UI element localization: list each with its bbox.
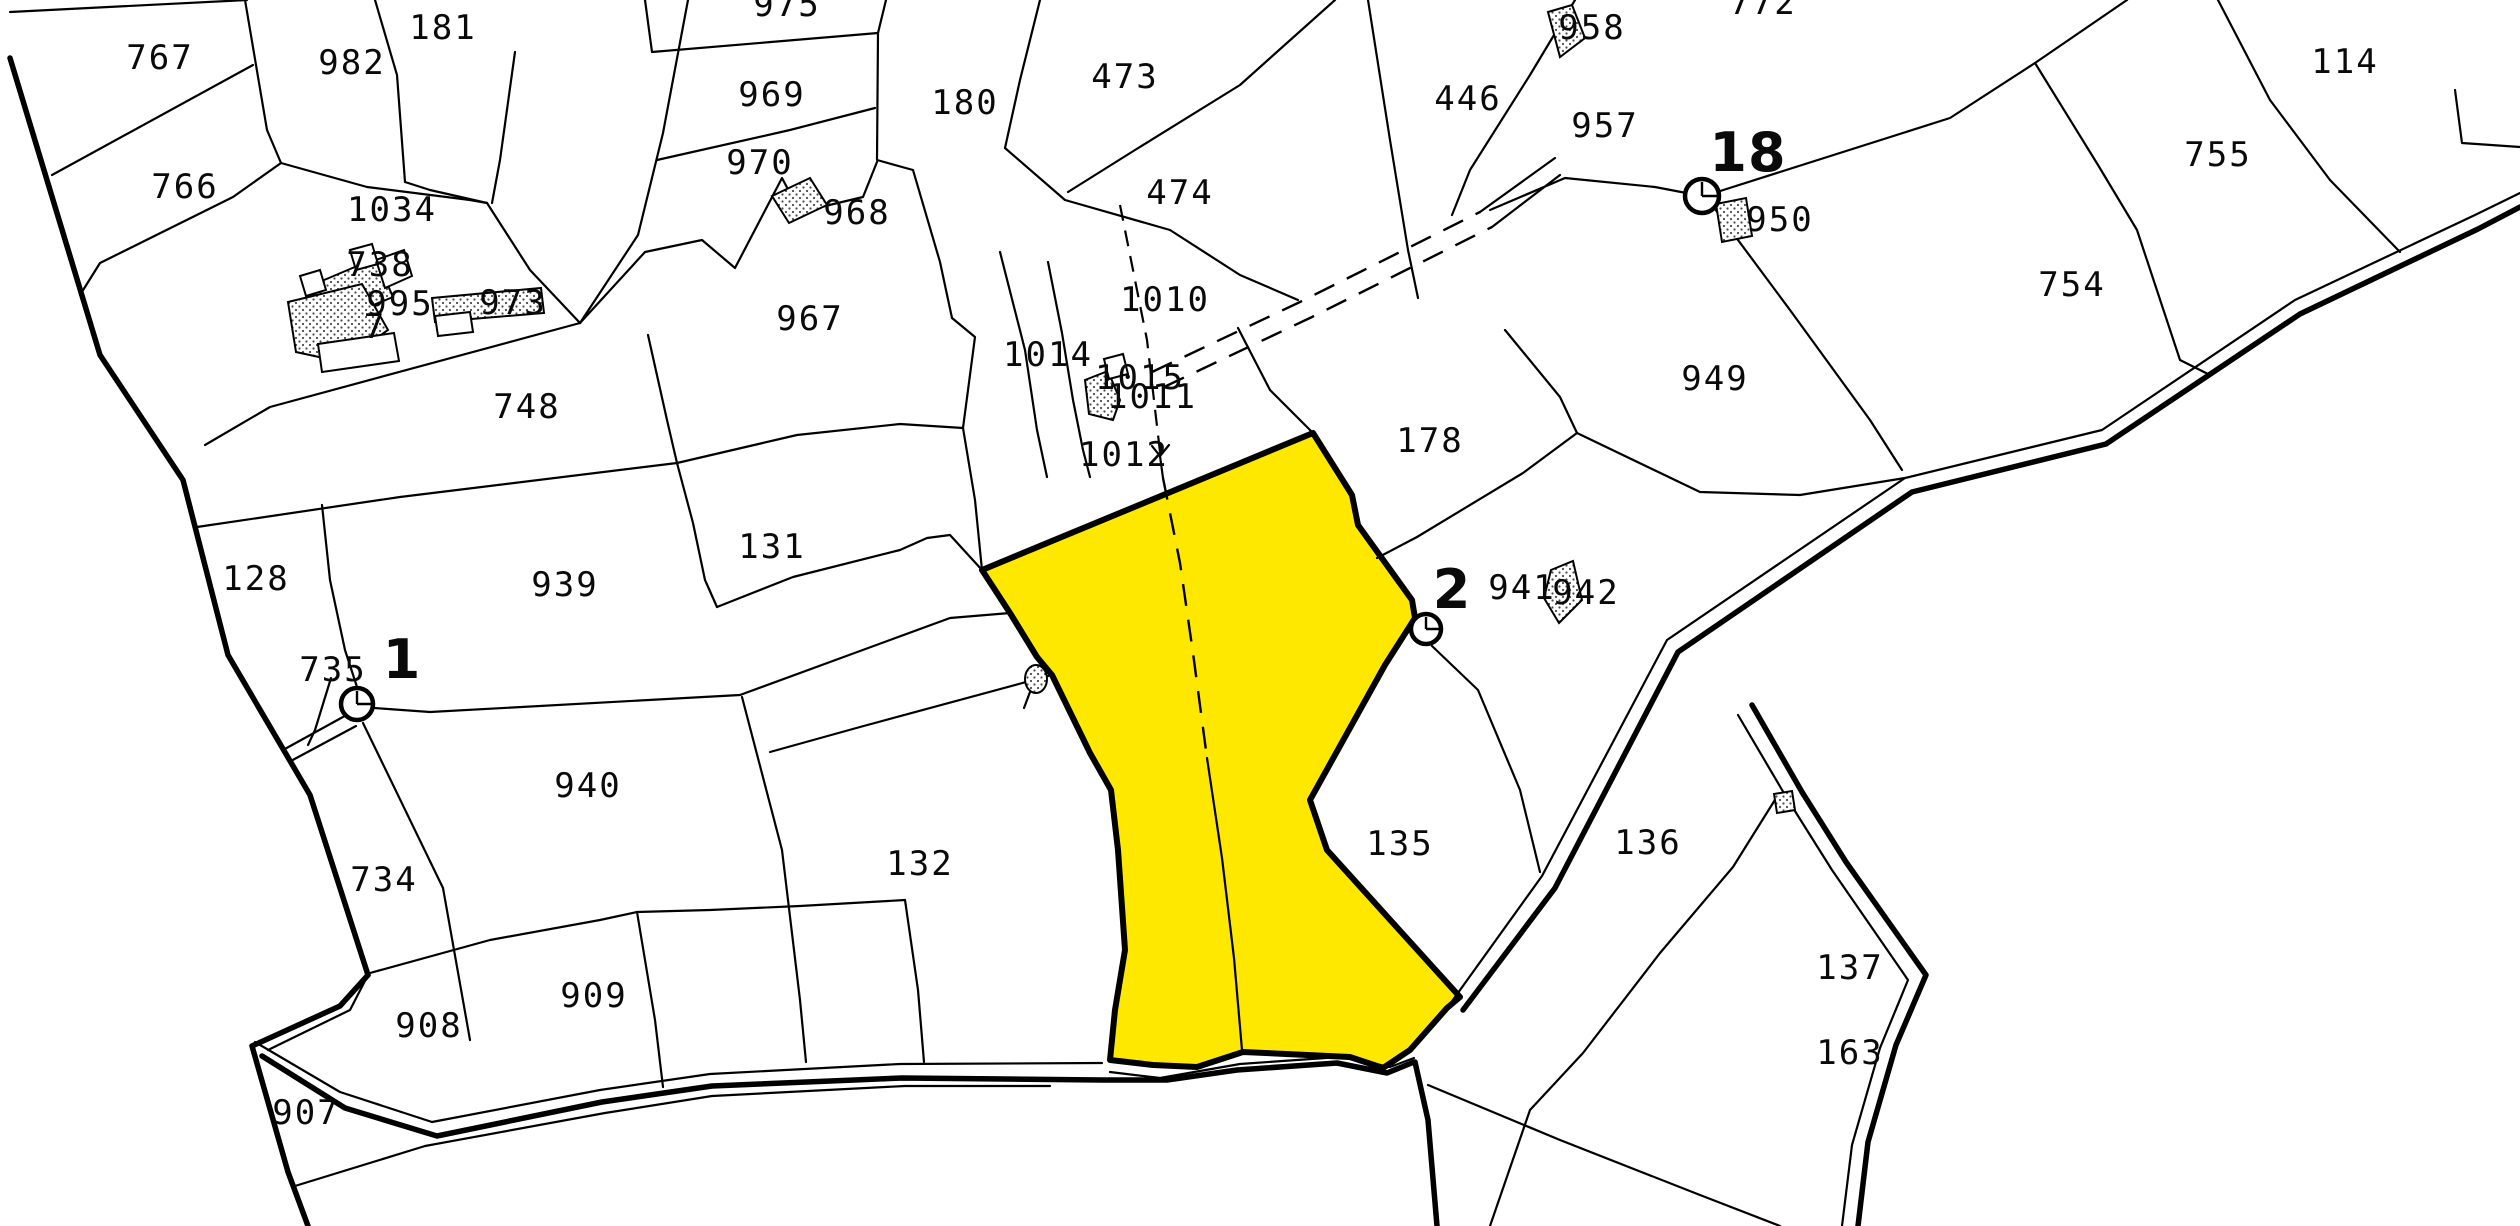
parcel-label-735: 735	[299, 650, 366, 690]
parcel-label-970: 970	[726, 143, 793, 183]
parcel-label-180: 180	[931, 83, 998, 123]
survey-point-label-18: 18	[1709, 121, 1786, 184]
parcel-label-135: 135	[1366, 824, 1433, 864]
parcel-label-975: 975	[753, 0, 820, 25]
parcel-label-163: 163	[1816, 1033, 1883, 1073]
parcel-label-754: 754	[2038, 265, 2105, 305]
parcel-label-949: 949	[1681, 359, 1748, 399]
parcel-label-908: 908	[395, 1006, 462, 1046]
parcel-label-982: 982	[318, 43, 385, 83]
parcel-label-767: 767	[126, 38, 193, 78]
parcel-label-942: 942	[1552, 573, 1619, 613]
parcel-label-939: 939	[531, 565, 598, 605]
parcel-label-957: 957	[1571, 106, 1638, 146]
parcel-label-940: 940	[554, 766, 621, 806]
parcel-label-132: 132	[886, 844, 953, 884]
parcel-label-968: 968	[823, 193, 890, 233]
parcel-label-907: 907	[272, 1093, 339, 1133]
parcel-label-950: 950	[1746, 200, 1813, 240]
parcel-label-114: 114	[2311, 42, 2378, 82]
parcel-label-941: 941	[1488, 568, 1555, 608]
parcel-label-967: 967	[776, 299, 843, 339]
parcel-label-738: 738	[346, 245, 413, 285]
parcel-label-131: 131	[738, 527, 805, 567]
building-annex-icon	[435, 312, 473, 336]
parcel-label-973: 973	[479, 283, 546, 323]
survey-point-label-2: 2	[1433, 558, 1472, 621]
parcel-label-136: 136	[1614, 823, 1681, 863]
parcel-label-1034: 1034	[347, 190, 437, 230]
parcel-label-446: 446	[1434, 79, 1501, 119]
parcel-label-137: 137	[1816, 948, 1883, 988]
parcel-label-772: 772	[1729, 0, 1796, 23]
parcel-label-909: 909	[560, 976, 627, 1016]
building-icon	[1774, 791, 1795, 813]
parcel-label-766: 766	[151, 167, 218, 207]
parcel-label-748: 748	[493, 387, 560, 427]
parcel-label-1011: 1011	[1107, 377, 1197, 417]
survey-point-label-1: 1	[383, 628, 422, 691]
parcel-label-1010: 1010	[1120, 280, 1210, 320]
building-annex-icon	[300, 270, 326, 296]
parcel-label-755: 755	[2184, 135, 2251, 175]
cadastral-map-view: 7679821817661034975969970968967748180473…	[0, 0, 2520, 1226]
parcel-label-969: 969	[738, 75, 805, 115]
parcel-label-958: 958	[1558, 8, 1625, 48]
parcel-label-1014: 1014	[1003, 335, 1093, 375]
parcel-label-1012: 1012	[1079, 435, 1169, 475]
parcel-label-474: 474	[1146, 173, 1213, 213]
parcel-label-7: 7	[364, 307, 386, 347]
parcel-label-473: 473	[1091, 57, 1158, 97]
parcel-label-178: 178	[1396, 421, 1463, 461]
parcel-label-181: 181	[409, 8, 476, 48]
parcel-map-canvas: 7679821817661034975969970968967748180473…	[0, 0, 2520, 1226]
well-symbol-icon	[1025, 665, 1047, 693]
parcel-label-128: 128	[222, 559, 289, 599]
parcel-label-734: 734	[350, 860, 417, 900]
